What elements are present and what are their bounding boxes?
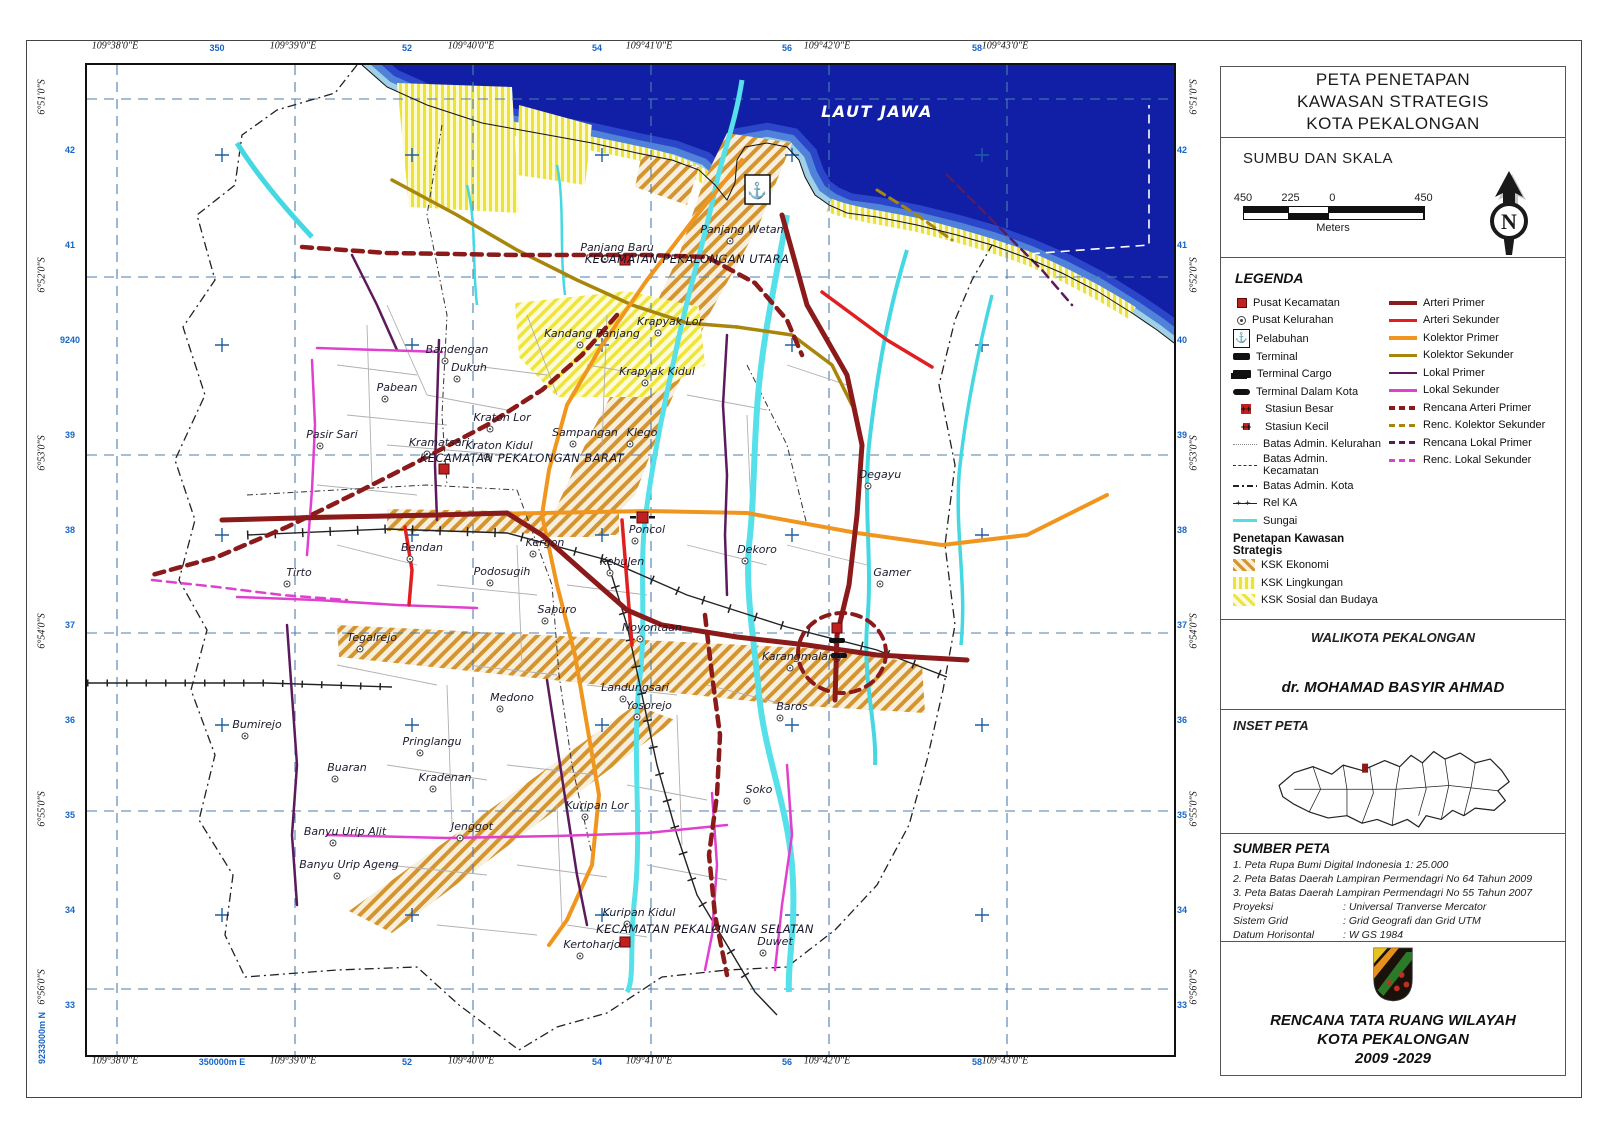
inset-heading: INSET PETA — [1233, 718, 1553, 733]
map-label-kel: Tegalrejo — [347, 631, 397, 644]
sos-icon — [1233, 594, 1255, 606]
map-label-kel: Dekoro — [737, 543, 777, 556]
legend-label: Lokal Sekunder — [1423, 384, 1499, 396]
legend-road-item: Renc. Kolektor Sekunder — [1389, 417, 1549, 435]
map-label-kel: Pasir Sari — [306, 428, 357, 441]
legend-item: Pusat Kecamatan — [1233, 294, 1385, 312]
map-label-kel: Kuripan Kidul — [603, 906, 676, 919]
legend-road-item: Arteri Sekunder — [1389, 312, 1549, 330]
map-label-kel: Kramatsari — [409, 436, 469, 449]
kelurahan-marker-dot — [879, 583, 881, 585]
map-sheet: ⚓ LAUT JAWAKECAMATAN PEKALONGAN UTARAKEC… — [0, 0, 1600, 1132]
kelurahan-marker-dot — [459, 837, 461, 839]
map-label-kel: Kradenan — [419, 771, 472, 784]
kelurahan-marker-dot — [789, 667, 791, 669]
map-label-kel: Gamer — [873, 566, 912, 579]
map-label-kel: Banyu Urip Alit — [304, 825, 387, 838]
kelurahan-marker-dot — [572, 443, 574, 445]
map-label-kel: Pabean — [377, 381, 418, 394]
map-label-kel: Bandengan — [426, 343, 489, 356]
rtrw-block: RENCANA TATA RUANG WILAYAH KOTA PEKALONG… — [1220, 942, 1566, 1076]
kelurahan-marker-dot — [419, 752, 421, 754]
map-label-kel: Karangmalang — [762, 650, 842, 663]
kelurahan-marker-dot — [286, 583, 288, 585]
map-label-kec: KECAMATAN PEKALONGAN SELATAN — [596, 922, 814, 936]
scale-bar-graphic — [1243, 206, 1425, 220]
map-label-kel: Jenggot — [449, 820, 494, 833]
legend-label: Batas Admin. Kecamatan — [1263, 453, 1385, 477]
legend-item: Stasiun Kecil — [1233, 418, 1385, 436]
legend-ksk-item: KSK Sosial dan Budaya — [1233, 592, 1385, 610]
map-label-kel: Sampangan — [552, 426, 618, 439]
legend-ksk-item: KSK Lingkungan — [1233, 574, 1385, 592]
legend-ksk-item: KSK Ekonomi — [1233, 557, 1385, 575]
kelurahan-marker-dot — [867, 485, 869, 487]
legend-label: Terminal — [1256, 351, 1298, 363]
sources-meta: Proyeksi: Universal Tranverse MercatorSi… — [1233, 900, 1553, 942]
map-label-kel: Kertoharjo — [563, 938, 620, 951]
source-meta-row: Datum Horisontal: W GS 1984 — [1233, 928, 1553, 942]
legend-item: Batas Admin. Kecamatan — [1233, 453, 1385, 477]
kelurahan-marker-dot — [629, 443, 631, 445]
kelurahan-marker-dot — [636, 716, 638, 718]
map-label-kel: Degayu — [859, 468, 901, 481]
kelurahan-marker-dot — [409, 558, 411, 560]
map-label-kel: Kuripan Lor — [565, 799, 630, 812]
kelurahan-marker-dot — [384, 398, 386, 400]
rel-icon — [1233, 498, 1257, 508]
legend-label: Kolektor Sekunder — [1423, 349, 1514, 361]
legend-label: Batas Admin. Kelurahan — [1263, 438, 1381, 450]
kelurahan-marker-dot — [634, 540, 636, 542]
map-label-kel: Kebulen — [600, 555, 644, 568]
legend-item: Stasiun Besar — [1233, 401, 1385, 419]
legend-heading: LEGENDA — [1235, 270, 1555, 286]
kelurahan-marker-dot — [334, 778, 336, 780]
circ-icon — [1237, 316, 1246, 325]
legend-label: KSK Lingkungan — [1261, 577, 1343, 589]
legend-label: Pusat Kelurahan — [1252, 314, 1333, 326]
map-label-kel: Krapyak Lor — [637, 315, 704, 328]
bkel-icon — [1233, 444, 1257, 445]
legend-roads-column: Arteri PrimerArteri SekunderKolektor Pri… — [1389, 294, 1549, 609]
sources-heading: SUMBER PETA — [1233, 841, 1553, 856]
legend-label: KSK Ekonomi — [1261, 559, 1329, 571]
legend-item: Batas Admin. Kelurahan — [1233, 436, 1385, 454]
ks-icon — [1389, 354, 1417, 358]
legend-road-item: Lokal Primer — [1389, 364, 1549, 382]
terminal2-icon — [1233, 389, 1250, 395]
kelurahan-marker-dot — [432, 788, 434, 790]
rtrw-title-line: RENCANA TATA RUANG WILAYAH — [1221, 1011, 1565, 1030]
map-label-kec: KECAMATAN PEKALONGAN BARAT — [420, 451, 625, 465]
legend-item: Rel KA — [1233, 495, 1385, 513]
legend-label: Sungai — [1263, 515, 1297, 527]
stbesar-icon — [1233, 404, 1259, 415]
legend-item: Sungai — [1233, 512, 1385, 530]
kelurahan-marker-dot — [579, 955, 581, 957]
map-label-kel: Podosugih — [474, 565, 531, 578]
cargo-icon — [1233, 370, 1251, 378]
map-label-kel: Soko — [746, 783, 773, 796]
bkec-icon — [1233, 465, 1257, 466]
legend-item: Pusat Kelurahan — [1233, 312, 1385, 330]
legend-label: Renc. Kolektor Sekunder — [1423, 419, 1545, 431]
legend-block: LEGENDA Pusat KecamatanPusat Kelurahan⚓P… — [1220, 258, 1566, 620]
source-meta-row: Sistem Grid: Grid Geografi dan Grid UTM — [1233, 914, 1553, 928]
scale-bar: 450 225 0 450 Meters — [1243, 192, 1433, 244]
rtrw-title-line: 2009 -2029 — [1221, 1049, 1565, 1068]
kelurahan-marker-dot — [779, 717, 781, 719]
map-label-kel: Tirto — [286, 566, 312, 579]
legend-label: Pusat Kecamatan — [1253, 297, 1340, 309]
mayor-name: dr. MOHAMAD BASYIR AHMAD — [1229, 679, 1557, 696]
map-label-kel: Baros — [776, 700, 808, 713]
map-label-kel: Bumirejo — [232, 718, 282, 731]
map-sources-block: SUMBER PETA 1. Peta Rupa Bumi Digital In… — [1220, 834, 1566, 942]
source-meta-row: Proyeksi: Universal Tranverse Mercator — [1233, 900, 1553, 914]
map-label-kel: Panjang Baru — [580, 241, 653, 254]
map-label-sea: LAUT JAWA — [821, 102, 933, 121]
legend-road-item: Rencana Lokal Primer — [1389, 434, 1549, 452]
kelurahan-marker-dot — [532, 553, 534, 555]
kelurahan-marker-dot — [359, 648, 361, 650]
kelurahan-marker-dot — [319, 445, 321, 447]
map-label-kel: Pringlangu — [403, 735, 462, 748]
kelurahan-marker-dot — [489, 582, 491, 584]
map-label-kel: Noyontaan — [622, 621, 682, 634]
map-label-kel: Dukuh — [451, 361, 487, 374]
port-icon: ⚓ — [745, 175, 770, 204]
as-icon — [1389, 319, 1417, 323]
ap-icon — [1389, 301, 1417, 306]
legend-item: Terminal — [1233, 348, 1385, 366]
kelurahan-marker-dot — [489, 428, 491, 430]
legend-symbols-column: Pusat KecamatanPusat Kelurahan⚓Pelabuhan… — [1233, 294, 1385, 609]
stkecil-icon — [1233, 421, 1259, 432]
ls-icon — [1389, 389, 1417, 392]
scale-tick: 225 — [1281, 192, 1299, 204]
ling-icon — [1233, 577, 1255, 589]
sources-list: 1. Peta Rupa Bumi Digital Indonesia 1: 2… — [1233, 858, 1553, 900]
map-title-line: PETA PENETAPAN — [1316, 69, 1470, 91]
legend-label: Pelabuhan — [1256, 333, 1309, 345]
kelurahan-marker-dot — [584, 816, 586, 818]
kelurahan-marker-dot — [622, 698, 624, 700]
map-canvas: ⚓ LAUT JAWAKECAMATAN PEKALONGAN UTARAKEC… — [85, 63, 1176, 1057]
map-label-kel: Bendan — [401, 541, 443, 554]
legend-label: Terminal Cargo — [1257, 368, 1332, 380]
legend-label: Kolektor Primer — [1423, 332, 1499, 344]
map-title-line: KOTA PEKALONGAN — [1306, 113, 1479, 135]
map-label-kel: Kraton Lor — [473, 411, 532, 424]
scale-tick: 450 — [1234, 192, 1252, 204]
legend-label: Arteri Sekunder — [1423, 314, 1499, 326]
map-label-kel: Klego — [627, 426, 658, 439]
map-label-kel: Yosorejo — [626, 699, 672, 712]
legend-label: Stasiun Kecil — [1265, 421, 1329, 433]
map-marginalia-panel: PETA PENETAPAN KAWASAN STRATEGIS KOTA PE… — [1220, 66, 1566, 1076]
map-label-kel: Panjang Wetan — [700, 223, 783, 236]
map-label-kel: Kandang Panjang — [544, 327, 640, 340]
legend-item: ⚓Pelabuhan — [1233, 329, 1385, 348]
source-item: 3. Peta Batas Daerah Lampiran Permendagr… — [1233, 886, 1553, 900]
scale-tick: 450 — [1414, 192, 1432, 204]
legend-item: Batas Admin. Kota — [1233, 477, 1385, 495]
legend-road-item: Kolektor Sekunder — [1389, 347, 1549, 365]
map-title-line: KAWASAN STRATEGIS — [1297, 91, 1489, 113]
map-label-kel: Landungsari — [601, 681, 669, 694]
map-label-kel: Kraton Kidul — [465, 439, 532, 452]
map-label-kel: Kergon — [526, 536, 565, 549]
legend-label: Rel KA — [1263, 497, 1297, 509]
source-item: 2. Peta Batas Daerah Lampiran Permendagr… — [1233, 872, 1553, 886]
kelurahan-marker-dot — [444, 360, 446, 362]
inset-map-graphic — [1271, 744, 1521, 830]
kelurahan-marker-dot — [244, 735, 246, 737]
map-label-kel: Sapuro — [538, 603, 577, 616]
legend-item: Terminal Dalam Kota — [1233, 383, 1385, 401]
city-map: ⚓ LAUT JAWAKECAMATAN PEKALONGAN UTARAKEC… — [87, 65, 1174, 1055]
legend-road-item: Lokal Sekunder — [1389, 382, 1549, 400]
mayor-heading: WALIKOTA PEKALONGAN — [1229, 630, 1557, 645]
map-label-kel: Banyu Urip Ageng — [299, 858, 399, 871]
scale-unit: Meters — [1243, 222, 1423, 234]
legend-label: Renc. Lokal Sekunder — [1423, 454, 1531, 466]
kelurahan-marker-dot — [332, 842, 334, 844]
kelurahan-marker-dot — [744, 560, 746, 562]
kelurahan-marker-dot — [499, 708, 501, 710]
ksk-heading: Penetapan Kawasan Strategis — [1233, 533, 1385, 557]
eko-icon — [1233, 559, 1255, 571]
terminal-icon — [1233, 353, 1250, 360]
kelurahan-marker-dot — [644, 382, 646, 384]
svg-text:⚓: ⚓ — [747, 181, 767, 200]
legend-label: Stasiun Besar — [1265, 403, 1333, 415]
scale-tick: 0 — [1329, 192, 1335, 204]
rks-icon — [1389, 424, 1417, 427]
title-block: PETA PENETAPAN KAWASAN STRATEGIS KOTA PE… — [1220, 66, 1566, 138]
map-label-kel: Poncol — [629, 523, 665, 536]
lp-icon — [1389, 372, 1417, 375]
kelurahan-marker-dot — [609, 572, 611, 574]
kelurahan-marker-dot — [639, 638, 641, 640]
map-label-kec: KECAMATAN PEKALONGAN UTARA — [585, 252, 790, 266]
legend-label: Rencana Lokal Primer — [1423, 437, 1532, 449]
legend-road-item: Kolektor Primer — [1389, 329, 1549, 347]
kelurahan-marker-dot — [336, 875, 338, 877]
pekalongan-crest-logo — [1370, 946, 1416, 1002]
legend-label: KSK Sosial dan Budaya — [1261, 594, 1378, 606]
north-arrow-icon: N — [1473, 169, 1545, 261]
map-label-kel: Krapyak Kidul — [619, 365, 695, 378]
scale-tick-labels: 450 225 0 450 — [1243, 192, 1433, 206]
map-label-kel: Buaran — [327, 761, 367, 774]
rlp-icon — [1389, 441, 1417, 444]
rap-icon — [1389, 406, 1417, 411]
mayor-block: WALIKOTA PEKALONGAN dr. MOHAMAD BASYIR A… — [1220, 620, 1566, 710]
legend-road-item: Renc. Lokal Sekunder — [1389, 452, 1549, 470]
legend-label: Batas Admin. Kota — [1263, 480, 1354, 492]
legend-road-item: Arteri Primer — [1389, 294, 1549, 312]
svg-text:N: N — [1501, 209, 1517, 234]
kelurahan-marker-dot — [762, 952, 764, 954]
sq-red-icon — [1237, 298, 1247, 308]
inset-city-marker — [1362, 764, 1368, 773]
kelurahan-marker-dot — [544, 620, 546, 622]
kelurahan-marker-dot — [456, 378, 458, 380]
legend-label: Terminal Dalam Kota — [1256, 386, 1358, 398]
source-item: 1. Peta Rupa Bumi Digital Indonesia 1: 2… — [1233, 858, 1553, 872]
rtrw-title-line: KOTA PEKALONGAN — [1221, 1030, 1565, 1049]
legend-label: Rencana Arteri Primer — [1423, 402, 1531, 414]
kelurahan-marker-dot — [729, 240, 731, 242]
map-label-kel: Duwet — [757, 935, 793, 948]
map-label-kel: Medono — [490, 691, 534, 704]
kelurahan-marker-dot — [579, 344, 581, 346]
kp-icon — [1389, 336, 1417, 340]
inset-map-block: INSET PETA — [1220, 710, 1566, 834]
legend-label: Arteri Primer — [1423, 297, 1485, 309]
kelurahan-marker-dot — [657, 332, 659, 334]
legend-item: Terminal Cargo — [1233, 366, 1385, 384]
scale-heading: SUMBU DAN SKALA — [1243, 150, 1551, 167]
legend-road-item: Rencana Arteri Primer — [1389, 399, 1549, 417]
anchor-icon: ⚓ — [1233, 329, 1250, 348]
legend-label: Lokal Primer — [1423, 367, 1485, 379]
rls-icon — [1389, 459, 1417, 462]
kelurahan-marker-dot — [746, 800, 748, 802]
sungai-icon — [1233, 519, 1257, 522]
scale-block: SUMBU DAN SKALA 450 225 0 450 — [1220, 138, 1566, 258]
bkota-icon — [1233, 485, 1257, 487]
